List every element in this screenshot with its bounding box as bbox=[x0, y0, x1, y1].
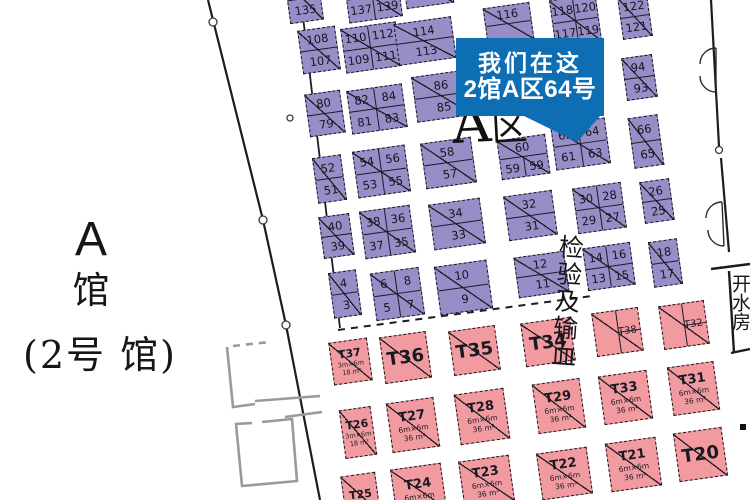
booth-cell-15: 15 bbox=[609, 263, 635, 287]
booth-title: T38 bbox=[617, 324, 637, 338]
booth-T22: T226m×6m36 m² bbox=[536, 447, 593, 500]
booth-80-79: 8079 bbox=[304, 90, 346, 138]
booth-32-31: 3231 bbox=[503, 190, 558, 241]
booth-title: T32 bbox=[683, 317, 703, 331]
booth-cell-137: 137 bbox=[347, 0, 376, 22]
booth-cell-83: 83 bbox=[377, 105, 407, 130]
booth-label: T32 bbox=[659, 301, 708, 349]
booth-title: T36 bbox=[386, 345, 426, 371]
booth-sub2: 36 m² bbox=[616, 403, 639, 415]
booth-cell-107: 107 bbox=[301, 47, 340, 73]
exhibition-floorplan: A 馆 (2号 馆) A区 检验及输血 开水房 我们在这 2馆A区64号 135… bbox=[0, 0, 750, 500]
booth-cell-29: 29 bbox=[576, 208, 602, 233]
booth-T31: T316m×6m36 m² bbox=[667, 361, 720, 416]
booth-cell-7: 7 bbox=[398, 291, 424, 317]
booth-T35: T35 bbox=[448, 325, 501, 376]
booth-sub2: 36 m² bbox=[472, 422, 495, 434]
booth-cell-51: 51 bbox=[316, 177, 346, 203]
column-marker bbox=[740, 424, 746, 430]
booth-cell-37: 37 bbox=[363, 232, 390, 258]
booth-18-17: 1817 bbox=[648, 238, 683, 288]
booth-94-93: 9493 bbox=[621, 54, 658, 101]
booth-T21: T216m×6m36 m² bbox=[605, 437, 662, 493]
booth-T23: T236m×6m36 m² bbox=[458, 455, 515, 500]
booth-cell-3: 3 bbox=[332, 292, 361, 317]
booth-label: T20 bbox=[674, 428, 727, 481]
booth-cell-55: 55 bbox=[382, 168, 410, 194]
booth-label: T336m×6m36 m² bbox=[599, 371, 652, 424]
booth-label: T286m×6m36 m² bbox=[455, 389, 509, 444]
booth-cell-81: 81 bbox=[350, 109, 380, 134]
booth-cell-135: 135 bbox=[288, 0, 323, 23]
right-wall bbox=[711, 0, 729, 252]
location-callout: 我们在这 2馆A区64号 bbox=[456, 38, 604, 116]
callout-line2: 2馆A区64号 bbox=[464, 78, 597, 102]
booth-30-28-29-27: 30282927 bbox=[572, 182, 627, 234]
booth-label: T246m×6m bbox=[391, 464, 446, 500]
booth-40-39: 4039 bbox=[318, 213, 355, 259]
booth-label: T373m×6m18 m² bbox=[329, 339, 371, 385]
booth-T33: T336m×6m36 m² bbox=[598, 370, 653, 425]
booth-34-33: 3433 bbox=[428, 198, 486, 251]
booth-cell-27: 27 bbox=[600, 205, 626, 230]
booth-label: T36 bbox=[380, 332, 431, 383]
booth-sub2: 36 m² bbox=[555, 479, 578, 491]
callout-pointer-icon bbox=[456, 115, 606, 145]
booth-T28: T286m×6m36 m² bbox=[454, 388, 511, 445]
booth-cell-61: 61 bbox=[554, 144, 583, 169]
booth-cell-59: 59 bbox=[524, 154, 550, 176]
booth-T36: T36 bbox=[379, 331, 432, 384]
booth-cell-6: 6 bbox=[371, 271, 397, 297]
booth-label: T226m×6m36 m² bbox=[537, 448, 592, 499]
booth-cell-53: 53 bbox=[356, 172, 384, 198]
booth-108-107: 108107 bbox=[297, 26, 341, 75]
booth-14-16-13-15: 14161315 bbox=[582, 242, 636, 291]
booth-38-36-37-35: 38363735 bbox=[359, 205, 416, 260]
booth-114-113: 114113 bbox=[393, 16, 456, 66]
booth-cell-5: 5 bbox=[374, 294, 400, 320]
callout-line1: 我们在这 bbox=[478, 52, 582, 75]
booth-122-121: 122121 bbox=[617, 0, 653, 40]
booth-sub2: 36 m² bbox=[684, 394, 707, 406]
booth-cell-17: 17 bbox=[652, 261, 682, 287]
booth-label: T276m×6m36 m² bbox=[387, 398, 439, 452]
booth-title: T25 bbox=[348, 486, 372, 500]
booth-T25: T25 bbox=[340, 472, 380, 500]
booth-sub2: 36 m² bbox=[477, 487, 500, 499]
booth-cell-59: 59 bbox=[500, 157, 526, 179]
booth-52-51: 5251 bbox=[312, 154, 347, 204]
booth-10-9: 109 bbox=[434, 260, 493, 316]
booth-54-56-53-55: 54565355 bbox=[352, 145, 411, 199]
booth-cell-65: 65 bbox=[632, 140, 663, 168]
booth-cell-93: 93 bbox=[625, 75, 657, 99]
booth-label: T296m×6m36 m² bbox=[533, 379, 585, 433]
booth-cell-35: 35 bbox=[388, 229, 415, 255]
booth-label: T263m×6m18 m² bbox=[340, 407, 376, 458]
booth-cell-8: 8 bbox=[394, 268, 420, 294]
booth-label: T25 bbox=[341, 473, 379, 500]
booth-cell-79: 79 bbox=[308, 111, 345, 136]
water-room-label: 开水房 bbox=[730, 274, 749, 331]
booth-cell-39: 39 bbox=[322, 234, 354, 258]
storage-rooms bbox=[227, 342, 322, 486]
booth-26-25: 2625 bbox=[639, 178, 675, 224]
booth-T24: T246m×6m bbox=[390, 463, 447, 500]
booth-cell-13: 13 bbox=[586, 267, 612, 291]
booth-sub2: 18 m² bbox=[349, 438, 369, 449]
booth-T38: T38 bbox=[591, 307, 644, 357]
booth-T26: T263m×6m18 m² bbox=[339, 406, 378, 459]
booth-82-84-81-83: 82848183 bbox=[346, 83, 408, 134]
booth-sub2: 18 m² bbox=[342, 367, 362, 378]
booth-6-8-5-7: 6857 bbox=[370, 267, 425, 321]
booth-label: T316m×6m36 m² bbox=[668, 362, 719, 415]
booth-label: T236m×6m36 m² bbox=[459, 456, 514, 500]
booth-T20: T20 bbox=[673, 427, 728, 482]
booth-T37: T373m×6m18 m² bbox=[328, 337, 373, 385]
booth-title: T20 bbox=[681, 442, 721, 468]
booth-cell-109: 109 bbox=[344, 48, 374, 73]
booth-sub2: 36 m² bbox=[549, 412, 572, 424]
booth-110-112-109-111: 110112109111 bbox=[340, 21, 402, 73]
booth-sub2: 36 m² bbox=[624, 470, 647, 482]
booth-label: T38 bbox=[592, 308, 642, 356]
booth-cell-121: 121 bbox=[621, 15, 652, 39]
booth-label: T216m×6m36 m² bbox=[606, 438, 661, 491]
booth-T29: T296m×6m36 m² bbox=[532, 378, 586, 434]
booth-cell-25: 25 bbox=[643, 199, 674, 223]
booth-title: T35 bbox=[455, 338, 495, 364]
booth-sub2: 36 m² bbox=[403, 431, 426, 443]
booth-label: T35 bbox=[449, 326, 500, 375]
booth-T32: T32 bbox=[658, 300, 710, 350]
booth-T27: T276m×6m36 m² bbox=[386, 397, 440, 453]
booth-cell-139: 139 bbox=[373, 0, 402, 19]
left-outer-wall bbox=[208, 0, 320, 500]
